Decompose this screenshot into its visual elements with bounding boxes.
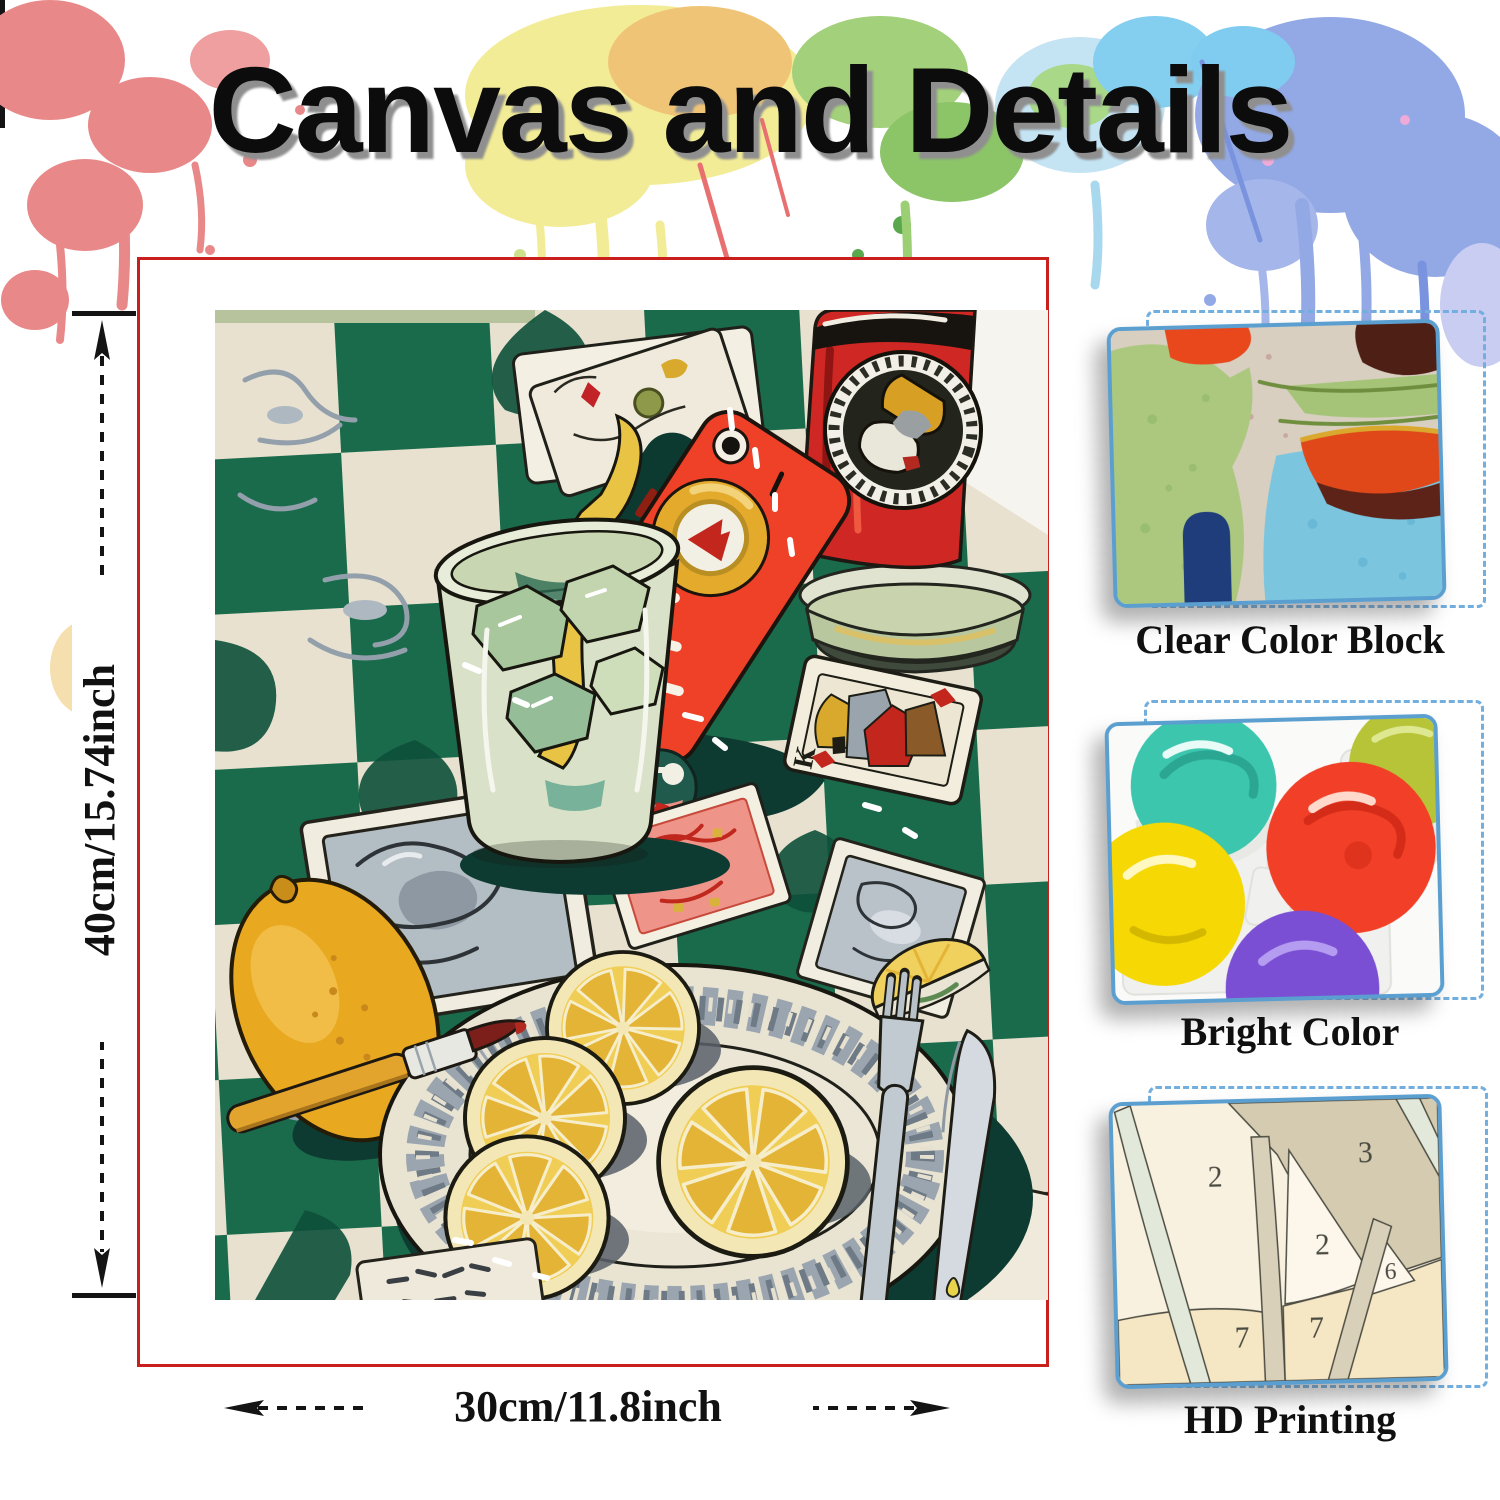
- svg-text:2: 2: [1315, 1228, 1331, 1262]
- detail-label-hd-printing: HD Printing: [1095, 1396, 1485, 1443]
- svg-text:6: 6: [1384, 1259, 1397, 1286]
- detail-label-clear-color-block: Clear Color Block: [1095, 616, 1485, 663]
- width-dimension-label: 30cm/11.8inch: [363, 1381, 813, 1433]
- detail-thumbnail-hd-printing: 2 3 2 6 7 7: [1108, 1094, 1448, 1390]
- svg-text:7: 7: [1234, 1321, 1250, 1355]
- canvas-artwork: K: [215, 310, 1048, 1300]
- svg-text:7: 7: [1309, 1311, 1325, 1345]
- height-dimension-label: 40cm/15.74inch: [72, 578, 128, 1042]
- svg-text:3: 3: [1358, 1136, 1374, 1170]
- svg-text:2: 2: [1207, 1160, 1223, 1194]
- product-infographic: Canvas and Details: [0, 0, 1500, 1500]
- page-title: Canvas and Details: [0, 40, 1500, 180]
- detail-thumbnail-clear-color-block: [1106, 319, 1446, 609]
- height-dimension-bottom-tick: [72, 1293, 136, 1298]
- detail-thumbnail-bright-color: [1104, 714, 1444, 1006]
- detail-label-bright-color: Bright Color: [1095, 1008, 1485, 1055]
